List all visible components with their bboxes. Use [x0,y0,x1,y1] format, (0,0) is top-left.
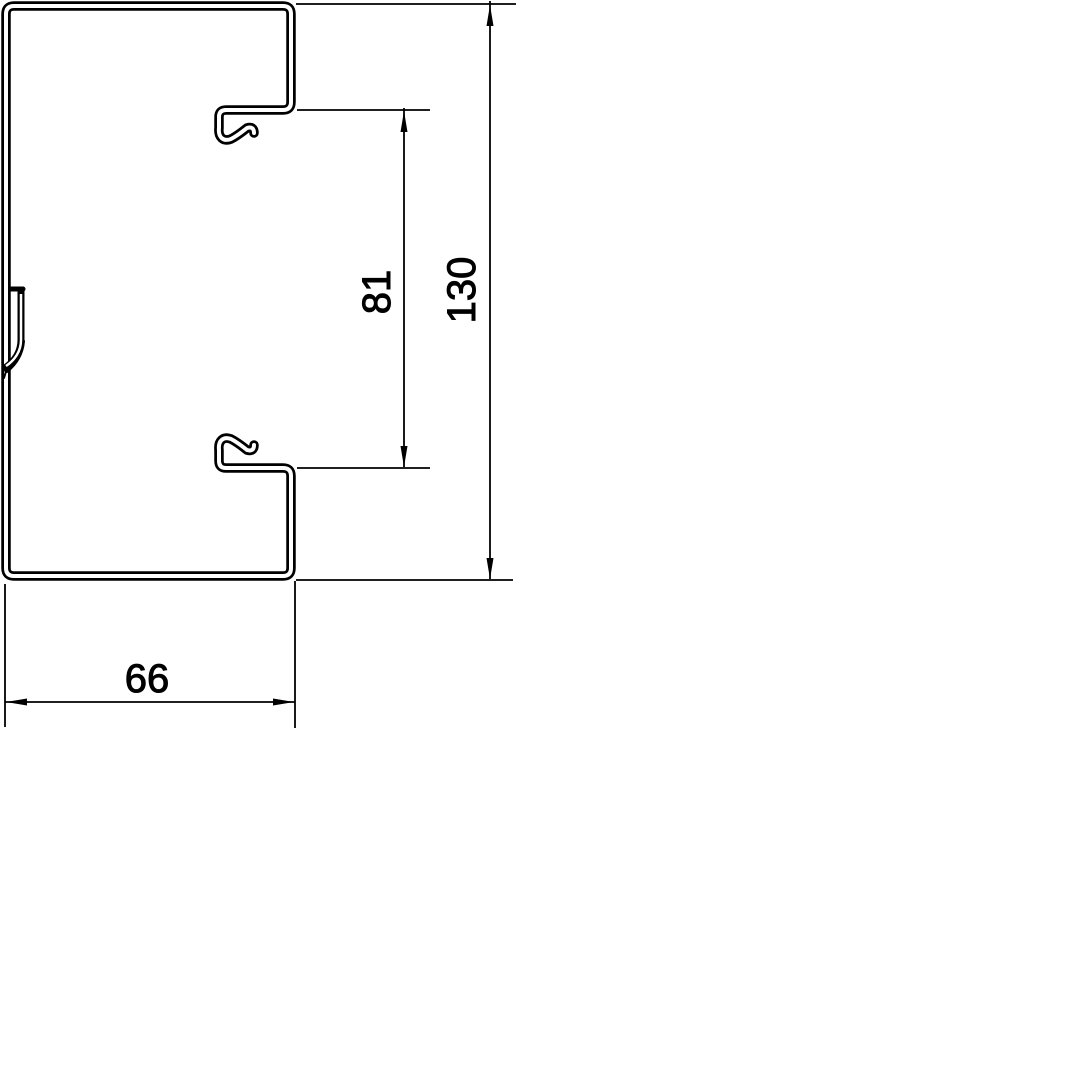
dimension-label-opening-height: 81 [355,270,399,315]
arrowhead-height-top [487,5,494,26]
duct-profile [4,6,291,576]
arrowhead-width-left [6,699,27,706]
profile-sheet-core [6,6,291,576]
dimension-label-overall-width: 66 [125,657,170,701]
profile-sheet-outline [6,6,291,576]
technical-drawing-page: 130 81 66 [0,0,1079,1080]
arrowhead-opening-top [401,111,408,132]
arrowhead-opening-bottom [401,446,408,467]
technical-drawing-canvas: 130 81 66 [0,0,1079,1080]
dimension-label-overall-height: 130 [440,257,484,324]
arrowhead-width-right [273,699,294,706]
arrowhead-height-bottom [487,558,494,579]
